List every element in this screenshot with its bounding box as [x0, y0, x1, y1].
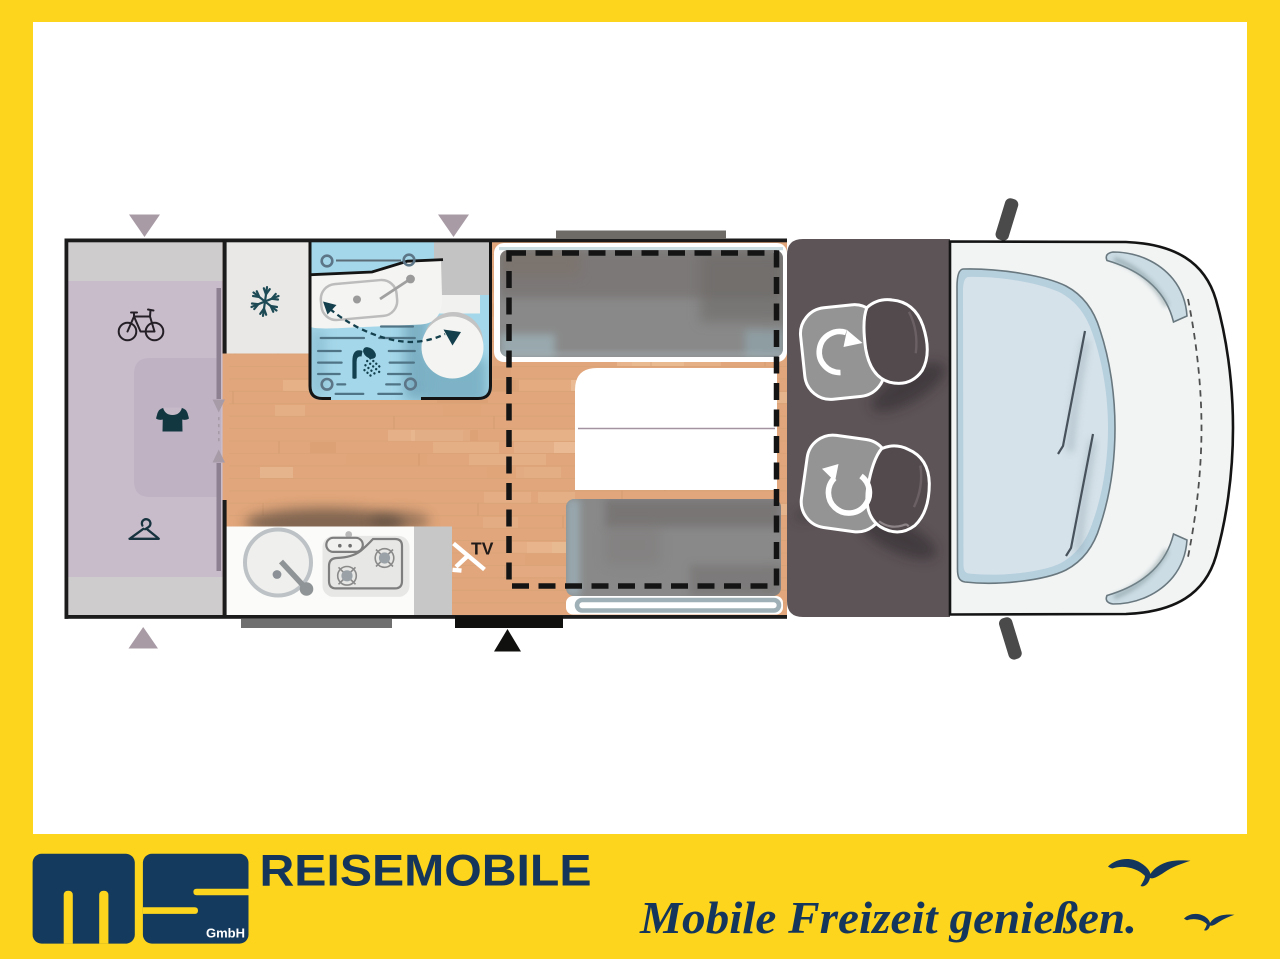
svg-text:TV: TV: [471, 539, 494, 559]
svg-text:REISEMOBILE: REISEMOBILE: [260, 847, 592, 896]
svg-text:GmbH: GmbH: [206, 926, 245, 941]
svg-text:Mobile Freizeit genießen.: Mobile Freizeit genießen.: [639, 892, 1137, 943]
